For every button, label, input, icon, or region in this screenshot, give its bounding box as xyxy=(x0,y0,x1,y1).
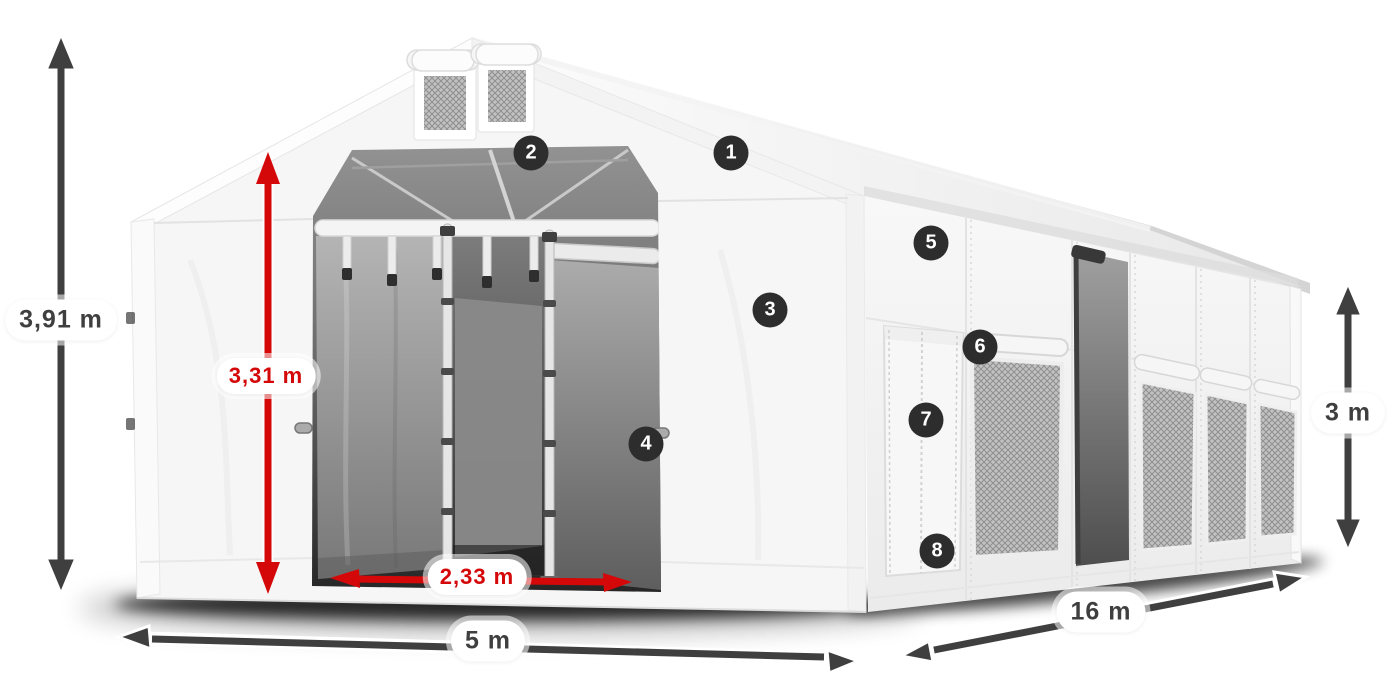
tent-illustration xyxy=(0,0,1400,700)
interior-right-curtain xyxy=(548,243,661,590)
entrance-lintel-beam xyxy=(315,220,660,236)
side-open-gap xyxy=(1070,244,1129,566)
callout-2[interactable]: 2 xyxy=(514,136,549,171)
callout-8[interactable]: 8 xyxy=(920,534,955,569)
gable-vent-window-left xyxy=(407,50,479,140)
callout-7[interactable]: 7 xyxy=(909,403,944,438)
callout-1[interactable]: 1 xyxy=(714,136,749,171)
gable-vent-window-right xyxy=(471,44,541,132)
dimension-label-entrance-width: 2,33 m xyxy=(428,559,527,595)
dimension-label-total-height: 3,91 m xyxy=(5,300,117,341)
callout-6[interactable]: 6 xyxy=(963,330,998,365)
interior-left-curtain xyxy=(316,236,446,579)
dimension-label-entrance-height: 3,31 m xyxy=(217,358,316,394)
dimension-label-side-length: 16 m xyxy=(1057,592,1146,633)
callout-5[interactable]: 5 xyxy=(914,226,949,261)
tent-product-diagram: 3,91 m 3,31 m 2,33 m 5 m 16 m 3 m 1 2 3 … xyxy=(0,0,1400,700)
left-door-handle xyxy=(295,423,312,433)
callout-4[interactable]: 4 xyxy=(629,427,664,462)
callout-3[interactable]: 3 xyxy=(753,293,788,328)
side-mesh-window-1 xyxy=(963,332,1068,557)
dimension-label-side-wall-height: 3 m xyxy=(1311,393,1385,434)
front-right-corner-bead xyxy=(846,194,866,612)
dimension-label-front-width: 5 m xyxy=(451,621,525,662)
interior-back-wall xyxy=(455,298,542,557)
